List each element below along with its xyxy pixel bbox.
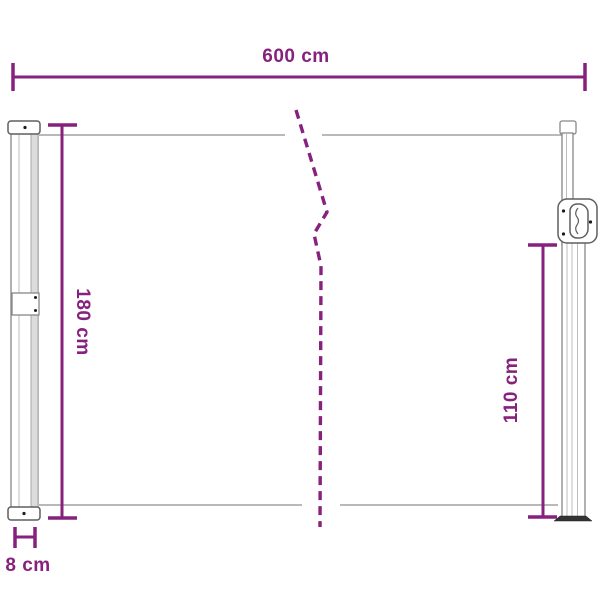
fabric-break-line — [296, 110, 327, 527]
screw-dot — [589, 220, 592, 223]
diagram-canvas: 600 cm 180 cm 110 cm 8 cm — [0, 0, 600, 600]
depth-dimension-label: 8 cm — [5, 555, 50, 576]
pole-lower-tube — [562, 241, 585, 518]
depth-dimension: 8 cm — [5, 527, 50, 576]
screw-dot — [22, 512, 25, 515]
screw-dot — [34, 309, 37, 312]
screw-dot — [34, 296, 37, 299]
awning-structure — [8, 121, 597, 521]
cassette-post-left — [8, 121, 40, 520]
screw-dot — [562, 209, 565, 212]
awning-dimension-diagram: 600 cm 180 cm 110 cm 8 cm — [0, 0, 600, 600]
height-left-dimension: 180 cm — [48, 125, 93, 518]
screw-dot — [23, 126, 26, 129]
cassette-shading — [31, 128, 38, 515]
pole-top-cap — [560, 121, 576, 134]
height-right-dimension-label: 110 cm — [501, 357, 522, 423]
height-left-dimension-label: 180 cm — [72, 288, 93, 355]
width-dimension: 600 cm — [13, 46, 585, 91]
height-right-dimension: 110 cm — [501, 245, 557, 517]
screw-dot — [562, 232, 565, 235]
pole-base-plate — [554, 516, 592, 521]
pull-pole-right — [554, 121, 597, 521]
width-dimension-label: 600 cm — [262, 46, 329, 67]
pull-handle — [558, 199, 597, 243]
